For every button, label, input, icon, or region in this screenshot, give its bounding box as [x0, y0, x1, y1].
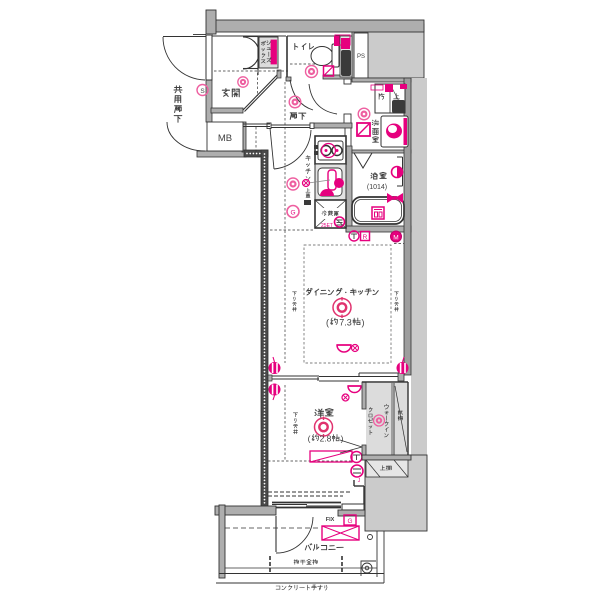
svg-text:(: (: [308, 434, 311, 444]
svg-text:2.8: 2.8: [320, 434, 332, 444]
svg-text:): ): [341, 434, 344, 444]
svg-text:25ET: 25ET: [321, 223, 333, 229]
svg-text:R: R: [363, 234, 368, 241]
svg-text:S: S: [200, 88, 205, 95]
svg-text:FIX: FIX: [326, 517, 335, 523]
svg-text:): ): [362, 318, 365, 328]
svg-text:(: (: [326, 318, 329, 328]
svg-text:MB: MB: [218, 133, 232, 144]
svg-text:7.3: 7.3: [339, 318, 352, 328]
svg-text:PS: PS: [357, 54, 365, 60]
svg-text:(1014): (1014): [367, 184, 387, 191]
svg-text:M: M: [393, 235, 398, 242]
svg-text:G: G: [347, 518, 352, 525]
svg-text:G: G: [290, 210, 295, 217]
